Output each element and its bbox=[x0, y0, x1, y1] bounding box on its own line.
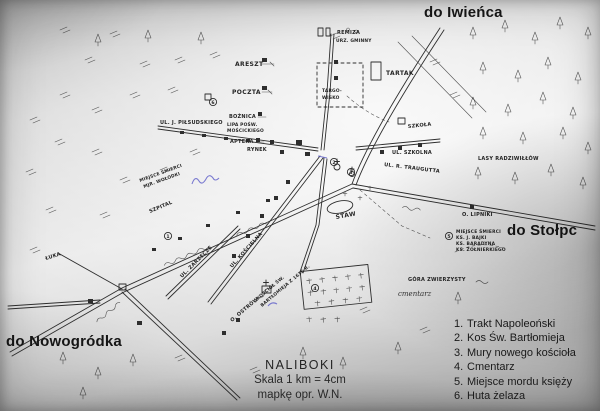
legend-item-3: 3.Mury nowego kościoła bbox=[454, 346, 576, 360]
legend-number: 2. bbox=[454, 331, 467, 345]
map-labels-layer: ARESZT POCZTA BOŻNICA LIPA POŚW. MOŚCICK… bbox=[44, 30, 539, 324]
label-luka: ŁUKA bbox=[44, 251, 62, 262]
label-apteka: APTEKA bbox=[230, 139, 254, 145]
label-urzad-gminny: URZ. GMINNY bbox=[336, 38, 372, 44]
marker-3: 3 bbox=[349, 170, 352, 176]
label-poczta: POCZTA bbox=[232, 89, 261, 96]
scale-note: Skala 1 km = 4cm bbox=[208, 373, 392, 388]
label-szpital: SZPITAL bbox=[148, 199, 173, 214]
field-hatch-layer bbox=[26, 27, 460, 373]
marker-4: 4 bbox=[313, 286, 316, 292]
legend-number: 3. bbox=[454, 346, 467, 360]
label-miejsce-smierci-line2: KS. J. BAJKI bbox=[456, 235, 487, 241]
label-ul-traugutta: UL. R. TRAUGUTTA bbox=[384, 162, 440, 175]
label-miejsce-smierci-line4: KS. ŻOŁNIERKIEGO bbox=[456, 246, 506, 253]
label-lipa-line1: LIPA POŚW. bbox=[227, 121, 258, 128]
direction-label-stolpc: do Stołpc bbox=[507, 222, 577, 239]
scanned-map-page: 1 2 3 4 5 6 ARESZT POCZTA BOŻNICA LIPA P… bbox=[0, 0, 600, 411]
legend-number: 1. bbox=[454, 317, 467, 331]
label-gora: GÓRA ZWIERZYSTY bbox=[408, 276, 466, 283]
direction-label-nowogrodka: do Nowogródka bbox=[6, 333, 122, 350]
legend-item-2: 2.Kos Św. Bartłomieja bbox=[454, 331, 576, 345]
label-rynek: RYNEK bbox=[247, 147, 268, 153]
legend-item-1: 1.Trakt Napoleoński bbox=[454, 317, 576, 331]
cemetery bbox=[300, 264, 373, 325]
direction-label-iwienca: do Iwieńca bbox=[424, 4, 503, 21]
label-miejsce-smierci-line1: MIEJSCE ŚMIERCI bbox=[456, 228, 501, 235]
marker-1: 1 bbox=[166, 234, 169, 240]
label-targowisko-line1: TARGO- bbox=[322, 88, 342, 94]
credit-note: mapkę opr. W.N. bbox=[208, 388, 392, 403]
marker-2: 2 bbox=[332, 160, 335, 166]
label-targowisko-line2: WISKO bbox=[322, 95, 340, 101]
label-ostrow: O. OSTRÓW bbox=[229, 296, 260, 324]
legend-text: Trakt Napoleoński bbox=[467, 318, 555, 330]
label-tartak: TARTAK bbox=[386, 70, 414, 77]
label-lipa-line2: MOŚCICKIEGO bbox=[227, 127, 264, 134]
legend-item-5: 5.Miejsce mordu księży bbox=[454, 375, 576, 389]
legend-text: Miejsce mordu księży bbox=[467, 376, 572, 388]
label-miejsce-smierci-line3: KS. BARADYNA bbox=[456, 241, 496, 247]
label-cmentarz-hand: cmentarz bbox=[398, 290, 432, 298]
label-ul-zarzecze: UL. ZARZECZE bbox=[179, 245, 214, 280]
legend-item-4: 4.Cmentarz bbox=[454, 360, 576, 374]
marker-5: 5 bbox=[447, 234, 450, 240]
label-lasy-radziwillow: LASY RADZIWIŁŁÓW bbox=[478, 155, 539, 162]
legend-text: Huta żelaza bbox=[467, 390, 525, 402]
label-areszt: ARESZT bbox=[235, 61, 264, 68]
legend-item-6: 6.Huta żelaza bbox=[454, 389, 576, 403]
label-pilsudskiego: UL. J. PIŁSUDSKIEGO bbox=[160, 120, 223, 126]
label-szkola: SZKOŁA bbox=[408, 122, 432, 130]
marker-6: 6 bbox=[211, 100, 214, 106]
legend: 1.Trakt Napoleoński 2.Kos Św. Bartłomiej… bbox=[454, 317, 576, 403]
legend-text: Kos Św. Bartłomieja bbox=[467, 332, 565, 344]
scribble-notes bbox=[96, 206, 488, 323]
title-block: NALIBOKI Skala 1 km = 4cm mapkę opr. W.N… bbox=[208, 358, 392, 403]
legend-number: 4. bbox=[454, 360, 467, 374]
legend-number: 6. bbox=[454, 389, 467, 403]
legend-number: 5. bbox=[454, 375, 467, 389]
label-boznica: BOŻNICA bbox=[229, 113, 256, 120]
label-staw: STAW bbox=[335, 211, 356, 221]
label-remiza: REMIZA bbox=[337, 30, 360, 36]
label-lipniki: O. LIPNIKI bbox=[462, 212, 493, 218]
label-ul-szkolna: UL. SZKOLNA bbox=[392, 150, 432, 156]
map-title: NALIBOKI bbox=[208, 358, 392, 373]
legend-text: Cmentarz bbox=[467, 361, 515, 373]
legend-text: Mury nowego kościoła bbox=[467, 347, 576, 359]
